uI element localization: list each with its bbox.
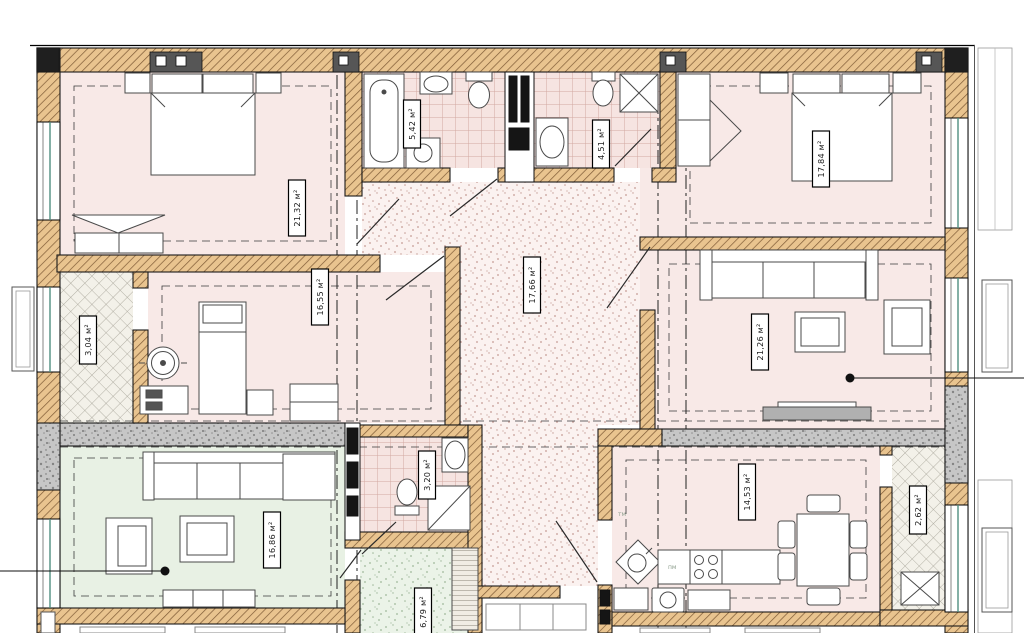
room-area-label: 16,86 м² (264, 512, 281, 568)
radiator-icon (41, 612, 55, 633)
svg-text:5,42 м²: 5,42 м² (407, 108, 417, 140)
chair-icon (247, 390, 273, 415)
appliance-label: тм (618, 511, 626, 518)
room-area-label: 17,84 м² (813, 131, 830, 187)
room-area-label: 6,79 м² (415, 588, 432, 633)
cabinet-icon (688, 590, 730, 610)
room-area-label: 16,55 м² (312, 269, 329, 325)
callout-dot (161, 567, 170, 576)
svg-text:21,26 м²: 21,26 м² (755, 323, 765, 360)
wall-concrete-left (60, 423, 345, 446)
callout-dot (846, 374, 855, 383)
svg-text:4,51 м²: 4,51 м² (596, 128, 606, 160)
radiator-icon (12, 287, 34, 371)
svg-text:14,53 м²: 14,53 м² (742, 473, 752, 510)
appliance-label: пм (668, 564, 676, 571)
sink-icon (420, 72, 452, 94)
toilet-icon (466, 72, 492, 108)
room-area-label: 17,66 м² (524, 257, 541, 313)
washing-machine-icon (652, 588, 684, 612)
svg-text:6,79 м²: 6,79 м² (418, 596, 428, 628)
corner-column (37, 48, 59, 72)
svg-text:3,04 м²: 3,04 м² (83, 324, 93, 356)
armchair-icon (884, 300, 930, 354)
room-area-label: 4,51 м² (593, 120, 610, 168)
corner-column (945, 48, 968, 72)
room-area-label: 21,32 м² (289, 180, 306, 236)
radiator-icon (982, 528, 1012, 612)
dresser-icon (290, 384, 338, 421)
window-icon (37, 287, 60, 372)
tv-stand-icon (163, 590, 255, 607)
svg-text:2,62 м²: 2,62 м² (913, 494, 923, 526)
sofa-icon (143, 452, 335, 500)
coffee-table-icon (180, 516, 234, 562)
svg-text:17,66 м²: 17,66 м² (527, 266, 537, 303)
room-area-label: 5,42 м² (404, 100, 421, 148)
radiator-icon (982, 280, 1012, 372)
floor-plan-drawing: 21,32 м² 16,55 м² 17,66 м² 5,42 м² 4,51 … (0, 0, 1024, 633)
svg-text:17,84 м²: 17,84 м² (816, 140, 826, 177)
sink-icon (442, 438, 468, 472)
svg-text:16,55 м²: 16,55 м² (315, 278, 325, 315)
coffee-table-icon (795, 312, 845, 352)
svg-text:21,32 м²: 21,32 м² (292, 189, 302, 226)
cabinet-icon (614, 588, 648, 610)
floor-plan-canvas: 21,32 м² 16,55 м² 17,66 м² 5,42 м² 4,51 … (0, 0, 1024, 633)
room-area-label: 3,04 м² (80, 316, 97, 364)
svg-text:16,86 м²: 16,86 м² (267, 521, 277, 558)
toilet-icon (395, 479, 419, 515)
sofa-icon (700, 250, 878, 300)
room-area-label: 21,26 м² (752, 314, 769, 370)
sink-icon (536, 118, 568, 166)
window-icon (945, 505, 968, 612)
shower-icon (620, 74, 658, 112)
bathtub-icon (364, 74, 404, 168)
room-area-label: 2,62 м² (910, 486, 927, 534)
room-area-label: 3,20 м² (419, 451, 436, 499)
window-icon (37, 122, 60, 220)
hallway-floor (362, 182, 640, 255)
vent-shaft-icon (901, 572, 939, 605)
armchair-icon (106, 518, 152, 574)
wall-concrete-right (662, 429, 945, 446)
corner-shelf-icon (72, 215, 165, 253)
built-in-wardrobe-icon (452, 548, 478, 630)
room-area-label: 14,53 м² (739, 464, 756, 520)
bed-single-icon (199, 302, 246, 414)
window-icon (945, 118, 968, 228)
svg-text:3,20 м²: 3,20 м² (422, 459, 432, 491)
window-icon (37, 519, 60, 608)
window-icon (945, 278, 968, 372)
tv-stand-icon (763, 402, 871, 420)
